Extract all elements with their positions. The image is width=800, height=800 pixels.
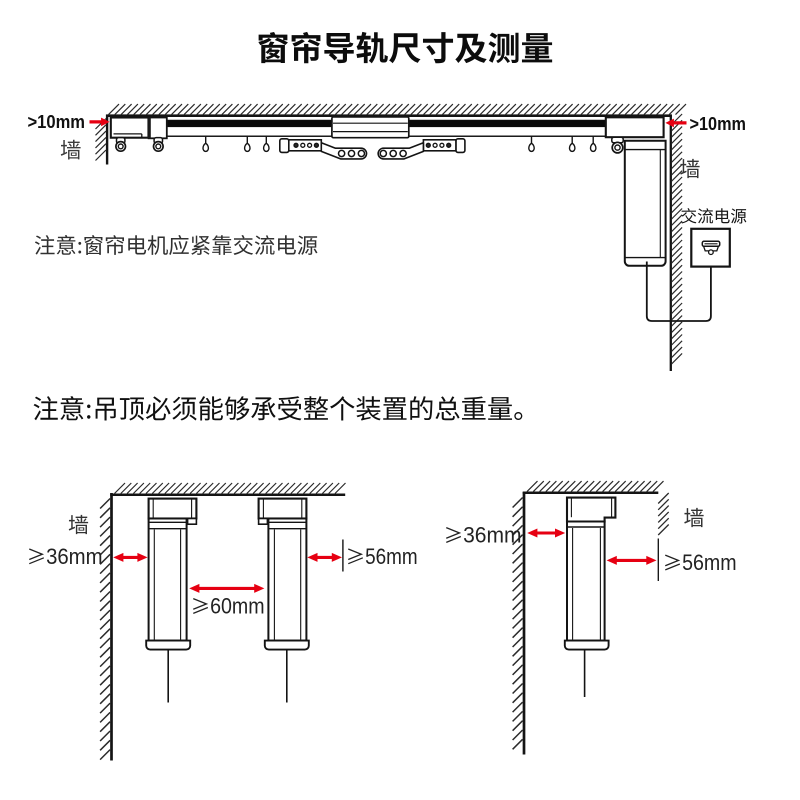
svg-text:56mm: 56mm [682,550,737,575]
svg-text:56mm: 56mm [365,544,418,569]
svg-text:>10mm: >10mm [690,114,747,134]
svg-text:>10mm: >10mm [28,112,86,132]
svg-text:60mm: 60mm [210,594,264,619]
svg-text:36mm: 36mm [46,544,103,569]
svg-text:36mm: 36mm [463,523,522,548]
